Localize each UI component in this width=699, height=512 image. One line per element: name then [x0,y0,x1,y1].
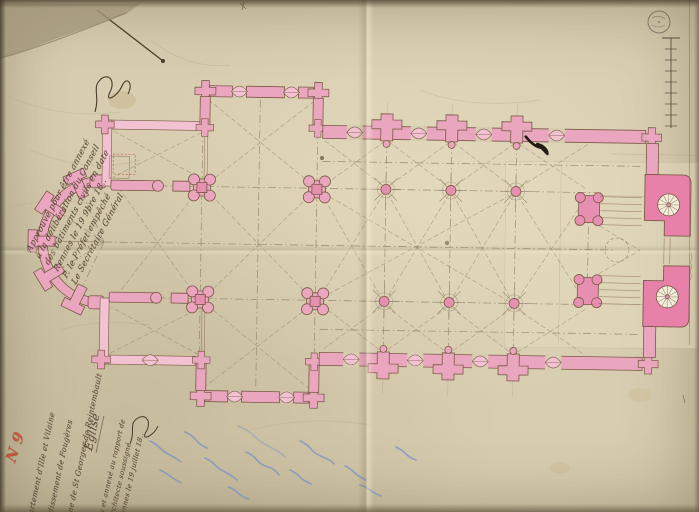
top-edge-shadow [0,0,699,8]
top-left-corner-fold [0,4,140,58]
corner-fold-svg [0,0,699,512]
right-edge-shadow [694,0,699,512]
bottom-edge-shadow [0,504,699,512]
scanned-church-plan: Approuvé pour être annexé à la délibérat… [0,0,699,512]
left-edge-shadow [0,0,6,512]
